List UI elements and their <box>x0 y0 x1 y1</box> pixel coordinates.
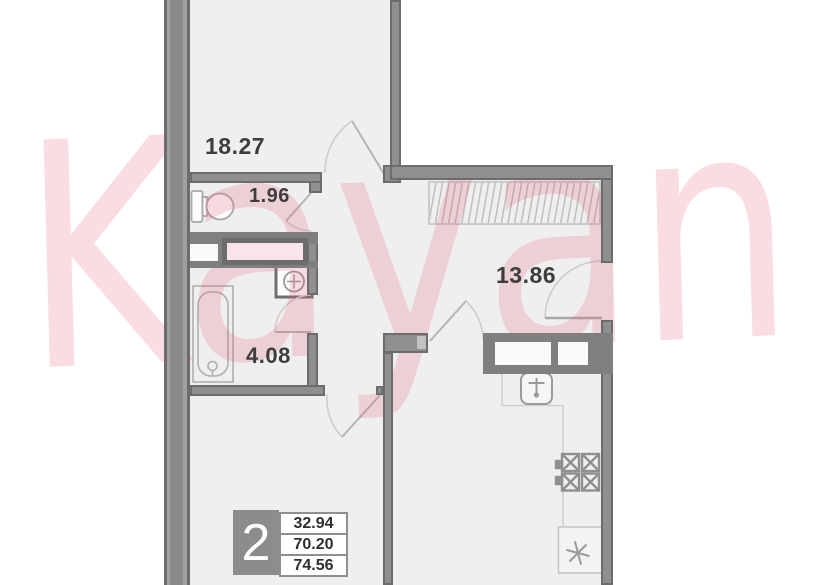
door-bathroom <box>275 295 311 332</box>
area-table: 32.94 70.20 74.56 <box>279 512 348 577</box>
wall-kitchen-entry-block <box>383 333 428 353</box>
kitchen-entry-block-cap <box>417 336 426 349</box>
wall-wc-top-stub <box>309 181 322 193</box>
wall-right-upper <box>601 178 613 263</box>
wall-bathroom-bottom <box>190 385 325 396</box>
kitchen-sink-icon <box>521 373 552 404</box>
bathtub-icon <box>193 286 233 382</box>
room-area-label-wc: 1.96 <box>249 185 290 208</box>
total-area-value: 74.56 <box>281 556 346 575</box>
kitchen-vent-opening-1 <box>495 342 551 365</box>
wall-hallway-top <box>390 165 613 180</box>
stove-icon <box>556 454 599 491</box>
living-area-value: 32.94 <box>281 514 346 535</box>
floor-area-value: 70.20 <box>281 535 346 556</box>
kitchen-vent-shaft <box>483 333 613 374</box>
wc-vent-shaft-pink <box>222 238 308 265</box>
rooms-count-badge: 2 <box>233 510 279 575</box>
kitchen-vent-opening-2 <box>558 342 588 365</box>
apartment-legend: 2 32.94 70.20 74.56 <box>233 510 348 577</box>
wall-living-kitchen <box>383 352 393 585</box>
refrigerator-icon <box>559 527 603 573</box>
room-area-label-hallway: 13.86 <box>496 262 556 289</box>
floorplan-canvas: Kayan 18.27 1.96 4.08 13.86 2 32.94 70.2… <box>0 0 828 585</box>
wall-exterior-left <box>164 0 190 585</box>
door-kitchen <box>430 301 483 341</box>
toilet-icon <box>192 191 234 222</box>
door-living-room <box>327 394 381 437</box>
wall-door-hinge-stub <box>376 386 383 395</box>
room-area-label-bedroom: 18.27 <box>205 133 265 160</box>
room-area-label-bathroom: 4.08 <box>246 343 291 369</box>
wc-vent-shaft-white <box>190 244 218 261</box>
door-bedroom <box>325 121 384 174</box>
wall-bedroom-right <box>390 0 401 170</box>
wall-bedroom-bottom <box>190 172 322 183</box>
fixtures-layer <box>0 0 828 585</box>
